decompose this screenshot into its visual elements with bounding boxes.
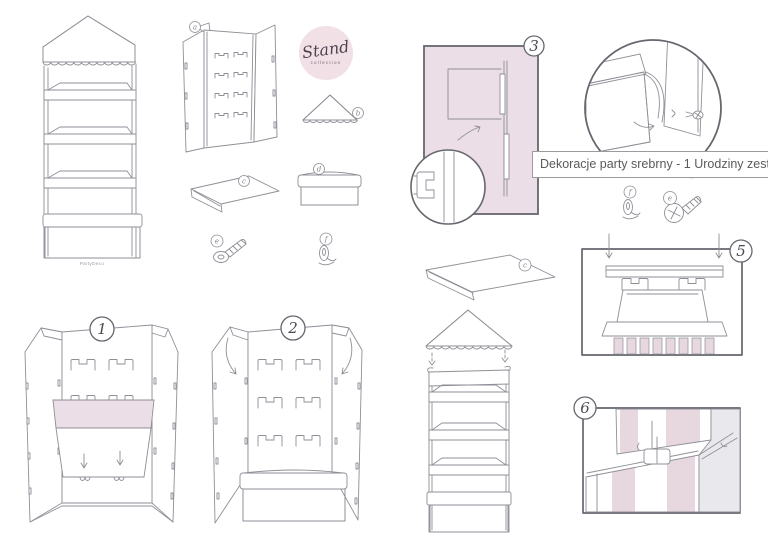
clip-part-drawing: f	[313, 230, 347, 272]
part-label-screw-2: e	[668, 195, 672, 203]
step-6-panel: 6	[573, 393, 753, 521]
open-panel-drawing: a	[178, 18, 313, 158]
step-2-number: 2	[287, 319, 298, 337]
logo-name: Stand	[301, 38, 350, 60]
clip-part-2-drawing: f	[616, 183, 652, 227]
brand-footer-text: PartyDeco	[80, 261, 105, 266]
stand-assembly-drawing	[420, 366, 524, 538]
shelf-part-2-drawing: c	[420, 246, 562, 304]
step-3-panel: 3	[418, 36, 554, 226]
finished-stand-drawing: PartyDeco	[35, 6, 150, 270]
step-6-number: 6	[580, 399, 590, 417]
awning-part-drawing: b	[296, 92, 366, 132]
step-5-number: 5	[736, 242, 746, 260]
part-label-shelf: c	[242, 178, 246, 186]
box-part-drawing: d	[293, 160, 367, 210]
stand-logo-badge: Stand collection	[299, 26, 353, 80]
part-label-screw: e	[215, 238, 219, 246]
part-label-panel: a	[193, 24, 197, 32]
step-3-number: 3	[529, 37, 539, 55]
screw-part-drawing: e	[203, 230, 259, 270]
step-1-panel: 1	[8, 308, 188, 557]
step-5-panel: 5	[576, 228, 750, 360]
part-label-box: d	[317, 166, 322, 174]
part-label-shelf-2: c	[523, 262, 527, 270]
tooltip-text: Dekoracje party srebrny - 1 Urodziny zes…	[540, 157, 768, 171]
shelf-part-drawing: c	[186, 166, 286, 214]
step-1-number: 1	[97, 320, 107, 338]
image-tooltip: Dekoracje party srebrny - 1 Urodziny zes…	[532, 151, 768, 178]
awning-part-2-drawing	[420, 303, 524, 371]
instruction-sheet: PartyDeco a Stand collection	[0, 0, 768, 557]
step-2-panel: 2	[200, 308, 378, 557]
part-label-awning: b	[356, 110, 361, 118]
